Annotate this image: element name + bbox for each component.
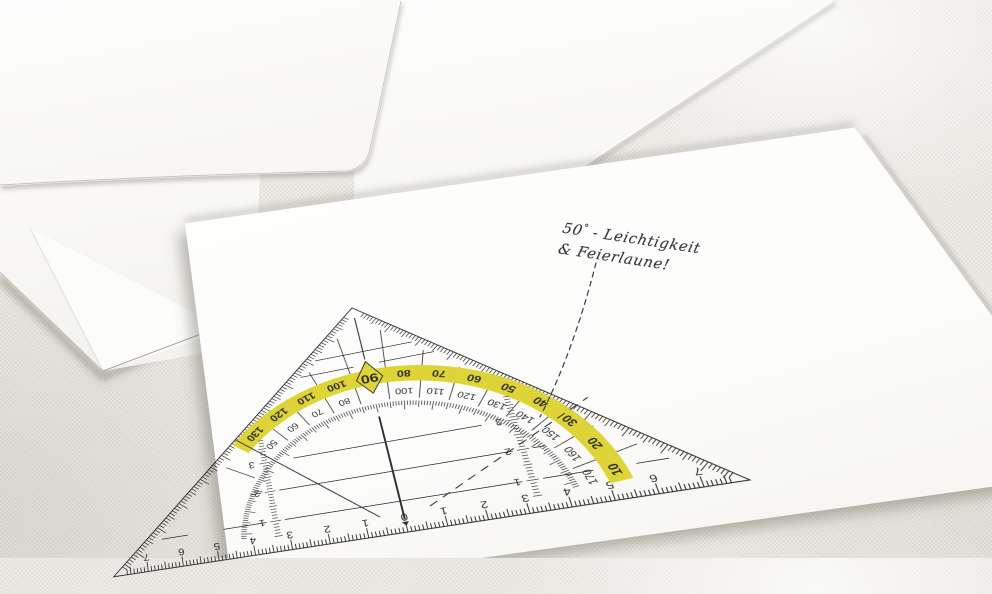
photo-scene: { "colors": { "fabric": "#eae7e1", "enve… (0, 0, 992, 558)
pointer-layer (0, 0, 992, 558)
dashed-pointer-line (540, 263, 596, 417)
